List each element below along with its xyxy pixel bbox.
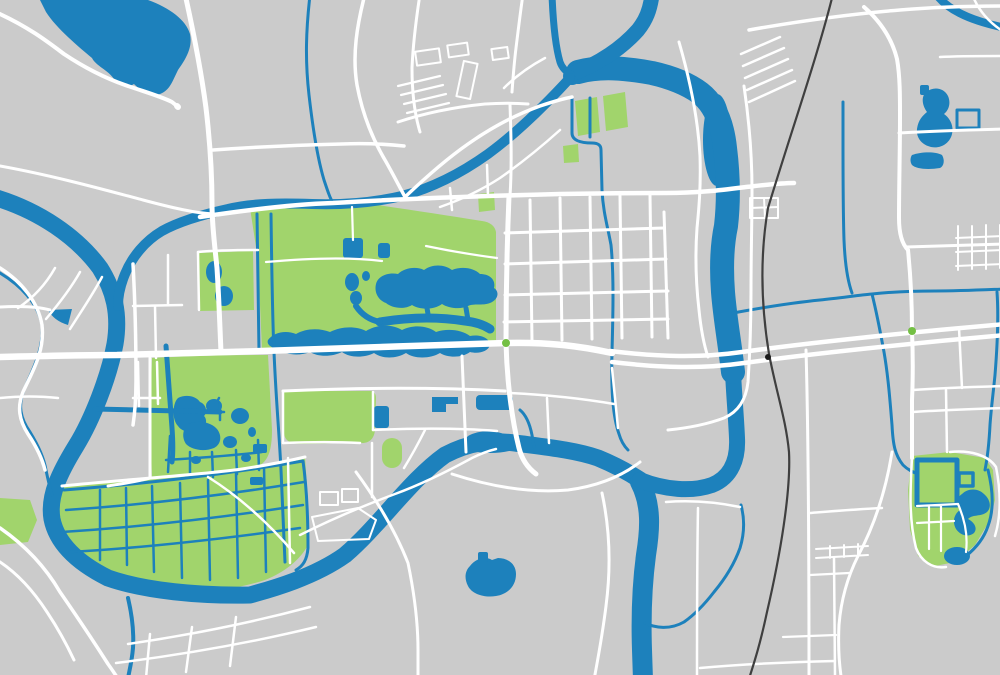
canal <box>95 409 220 412</box>
canal <box>257 214 259 352</box>
pond <box>374 406 389 428</box>
pond <box>920 85 929 95</box>
small-north-green-a <box>563 144 579 163</box>
grid-street <box>620 196 622 338</box>
poi-dot <box>502 339 510 347</box>
ne-long-pond <box>911 152 944 169</box>
grid-street <box>650 195 652 337</box>
pond <box>362 271 370 281</box>
street <box>697 508 698 675</box>
sw-pond <box>223 436 237 448</box>
pond <box>345 273 359 291</box>
street <box>834 558 835 675</box>
mid-south-park <box>284 391 376 444</box>
sw-pond <box>231 408 249 424</box>
poi-dot <box>908 327 916 335</box>
park-path <box>352 207 353 240</box>
street <box>157 362 158 404</box>
small-pond <box>250 477 263 485</box>
green-capsule <box>382 438 402 468</box>
street <box>133 305 182 306</box>
lake-channel <box>427 308 429 320</box>
pond <box>478 552 488 562</box>
street <box>155 306 156 358</box>
pond <box>350 291 362 305</box>
street <box>946 390 947 452</box>
road-end-dot <box>177 106 178 107</box>
grid-street <box>560 198 562 340</box>
street <box>198 252 199 310</box>
pond <box>378 243 390 258</box>
map-canvas[interactable] <box>0 0 1000 675</box>
street <box>940 56 1000 57</box>
grid-street <box>590 197 592 339</box>
twin-green-block-a <box>575 97 600 136</box>
railway-crossing-dot <box>765 354 771 360</box>
sw-pond <box>248 427 256 437</box>
grid-street <box>530 200 532 341</box>
street <box>510 104 511 196</box>
street <box>283 442 360 443</box>
street <box>138 362 139 406</box>
south-river-branch <box>640 482 649 675</box>
twin-green-block-b <box>603 92 628 131</box>
street <box>487 165 488 196</box>
lake-channel <box>466 308 468 320</box>
